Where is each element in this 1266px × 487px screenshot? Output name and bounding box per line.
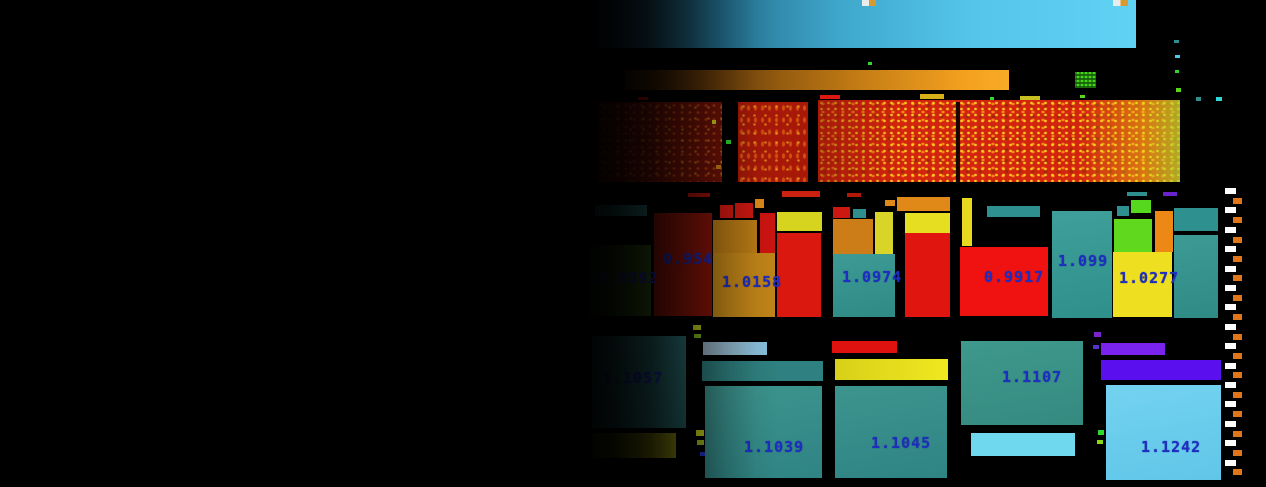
speck bbox=[700, 452, 705, 456]
green-texture-chip[interactable] bbox=[1075, 72, 1096, 88]
mid-teal-hbar[interactable] bbox=[987, 206, 1040, 217]
speck bbox=[726, 140, 731, 144]
mid-cell-1-099-label: 1.099 bbox=[1058, 252, 1108, 270]
mid-cell-0-9592-label: 0.9592 bbox=[598, 269, 658, 287]
mid-teal-right-main[interactable] bbox=[1174, 235, 1218, 318]
speck bbox=[990, 97, 994, 100]
legend-dash-white bbox=[1225, 304, 1236, 310]
speck bbox=[1175, 70, 1179, 73]
bot-olive-bar[interactable] bbox=[592, 433, 676, 458]
speck bbox=[1098, 430, 1104, 435]
bot-lightblue-bar-2[interactable] bbox=[971, 433, 1075, 456]
top-blue-panel[interactable] bbox=[598, 0, 1136, 48]
legend-dash-orange bbox=[1233, 450, 1242, 456]
legend-dash-white bbox=[1225, 421, 1236, 427]
bot-cell-1-1242-label: 1.1242 bbox=[1141, 438, 1201, 456]
speck bbox=[755, 199, 764, 208]
mid-teal-chip-2[interactable] bbox=[1117, 206, 1129, 216]
legend-dash-orange bbox=[1233, 295, 1242, 301]
legend-dash-white bbox=[1225, 266, 1236, 272]
bot-cell-1-1045-label: 1.1045 bbox=[871, 434, 931, 452]
speck bbox=[638, 97, 648, 100]
legend-dash-white bbox=[1225, 188, 1236, 194]
bot-cell-1-1039-label: 1.1039 bbox=[744, 438, 804, 456]
speck bbox=[1094, 332, 1101, 337]
bot-teal-hbar[interactable] bbox=[702, 361, 823, 381]
orange-gradient-bar[interactable] bbox=[625, 70, 1009, 90]
legend-dash-orange bbox=[1233, 353, 1242, 359]
speck bbox=[820, 95, 840, 99]
legend-dash-white bbox=[1225, 324, 1236, 330]
speck bbox=[847, 193, 861, 197]
mid-cell-1-0974-label: 1.0974 bbox=[842, 268, 902, 286]
legend-dash-white bbox=[1225, 460, 1236, 466]
mid-yellow-vert[interactable] bbox=[962, 198, 972, 246]
speck bbox=[716, 165, 721, 169]
speck bbox=[1174, 40, 1179, 43]
bot-yellow-bar[interactable] bbox=[835, 359, 948, 380]
speck bbox=[1176, 88, 1181, 92]
bot-cell-1-1039[interactable] bbox=[705, 386, 822, 478]
speck bbox=[1175, 55, 1180, 58]
legend-dash-white bbox=[1225, 363, 1236, 369]
speck bbox=[868, 62, 872, 65]
speck bbox=[1097, 440, 1103, 444]
speck bbox=[693, 325, 701, 330]
legend-dash-orange bbox=[1233, 237, 1242, 243]
bot-purple-bar-1[interactable] bbox=[1101, 343, 1165, 355]
mid-yellow-2[interactable] bbox=[905, 213, 950, 233]
legend-dash-orange bbox=[1233, 431, 1242, 437]
speck bbox=[885, 200, 895, 206]
mid-orange-1[interactable] bbox=[833, 219, 873, 254]
speck bbox=[688, 193, 710, 197]
mid-teal-chip-1[interactable] bbox=[853, 209, 866, 218]
mid-red-chip-1[interactable] bbox=[720, 205, 733, 218]
legend-dash-white bbox=[1225, 285, 1236, 291]
legend-dash-orange bbox=[1233, 411, 1242, 417]
band-module-mid[interactable] bbox=[738, 102, 808, 182]
mid-teal-strip[interactable] bbox=[595, 205, 647, 216]
bot-lightblue-bar-1[interactable] bbox=[703, 342, 767, 355]
legend-dash-orange bbox=[1233, 334, 1242, 340]
legend-dash-white bbox=[1225, 246, 1236, 252]
legend-dash-orange bbox=[1233, 314, 1242, 320]
mid-yellow-narrow[interactable] bbox=[875, 212, 893, 254]
mid-cell-0-954-label: 0.954 bbox=[663, 250, 713, 268]
legend-dash-white bbox=[1225, 343, 1236, 349]
mid-green-chip-sm[interactable] bbox=[1131, 200, 1151, 213]
bot-cell-1-1107-label: 1.1107 bbox=[1002, 368, 1062, 386]
mid-cell-1-0277-label: 1.0277 bbox=[1119, 269, 1179, 287]
speck bbox=[1163, 192, 1177, 196]
mid-red-chip-3[interactable] bbox=[833, 207, 850, 218]
band-module-right[interactable] bbox=[818, 100, 1180, 182]
bot-cell-1-1242[interactable] bbox=[1106, 385, 1221, 480]
speck bbox=[697, 440, 704, 445]
legend-dash-white bbox=[1225, 440, 1236, 446]
bot-red-bar[interactable] bbox=[832, 341, 897, 353]
legend-dash-orange bbox=[1233, 217, 1242, 223]
speck bbox=[1080, 95, 1085, 98]
speck bbox=[1216, 97, 1222, 101]
mid-red-narrow[interactable] bbox=[760, 213, 775, 253]
mid-red-tall-1[interactable] bbox=[777, 233, 821, 317]
bot-cell-1-1057-label: 1.1057 bbox=[603, 369, 663, 387]
bot-cell-1-1045[interactable] bbox=[835, 386, 947, 478]
mid-orange-top-2[interactable] bbox=[897, 197, 950, 211]
top-marker-icon-1 bbox=[862, 0, 876, 6]
detector-map: 0.95920.9541.01581.09740.99171.0991.0277… bbox=[0, 0, 1266, 487]
legend-dash-white bbox=[1225, 382, 1236, 388]
mid-cell-1-0158-label: 1.0158 bbox=[722, 273, 782, 291]
top-marker-icon-2 bbox=[1113, 0, 1128, 6]
legend-dash-orange bbox=[1233, 275, 1242, 281]
legend-dash-orange bbox=[1233, 469, 1242, 475]
legend-dash-white bbox=[1225, 401, 1236, 407]
mid-red-tall-2[interactable] bbox=[905, 233, 950, 317]
band-module-left[interactable] bbox=[598, 102, 722, 182]
legend-dash-orange bbox=[1233, 198, 1242, 204]
speck bbox=[1020, 96, 1040, 100]
legend-dash-white bbox=[1225, 207, 1236, 213]
speck bbox=[920, 94, 944, 99]
speck bbox=[1127, 192, 1147, 196]
bot-purple-bar-2[interactable] bbox=[1101, 360, 1221, 380]
mid-yellow-top[interactable] bbox=[777, 212, 822, 231]
speck bbox=[782, 191, 820, 197]
speck bbox=[1196, 97, 1201, 101]
speck bbox=[694, 334, 701, 338]
legend-dash-orange bbox=[1233, 256, 1242, 262]
mid-cell-0-9917-label: 0.9917 bbox=[984, 268, 1044, 286]
mid-red-chip-2[interactable] bbox=[735, 203, 753, 218]
legend-dash-orange bbox=[1233, 372, 1242, 378]
speck bbox=[1093, 345, 1099, 349]
legend-dash-white bbox=[1225, 227, 1236, 233]
mid-green-block[interactable] bbox=[1114, 219, 1152, 252]
mid-tan-top[interactable] bbox=[713, 220, 757, 253]
mid-orange-vert[interactable] bbox=[1155, 211, 1173, 252]
legend-dash-orange bbox=[1233, 392, 1242, 398]
mid-teal-right-top[interactable] bbox=[1174, 208, 1218, 231]
band-divider bbox=[956, 102, 960, 182]
speck bbox=[696, 430, 704, 436]
speck bbox=[712, 120, 716, 124]
